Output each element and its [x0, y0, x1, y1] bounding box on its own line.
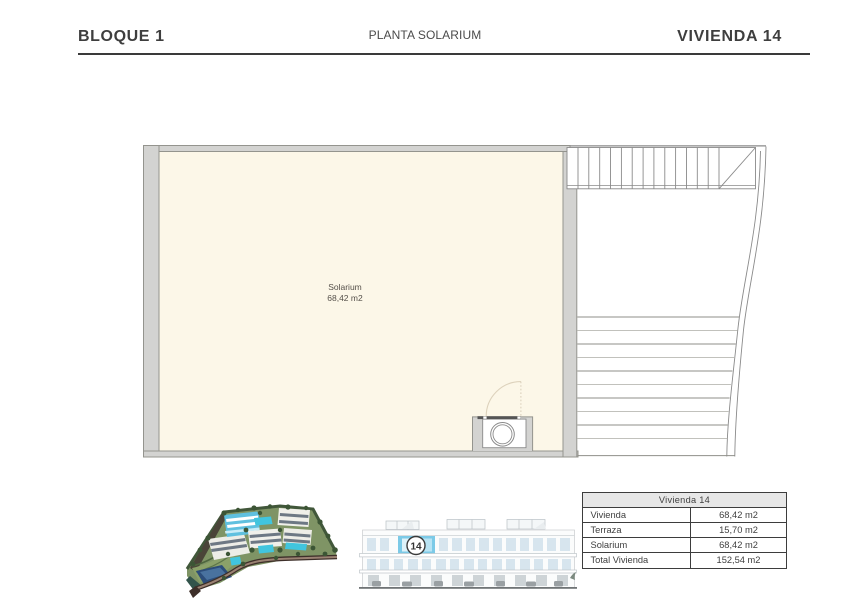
svg-text:14: 14	[410, 542, 422, 553]
svg-text:68,42 m2: 68,42 m2	[327, 293, 363, 303]
svg-text:Solarium: Solarium	[328, 282, 362, 292]
